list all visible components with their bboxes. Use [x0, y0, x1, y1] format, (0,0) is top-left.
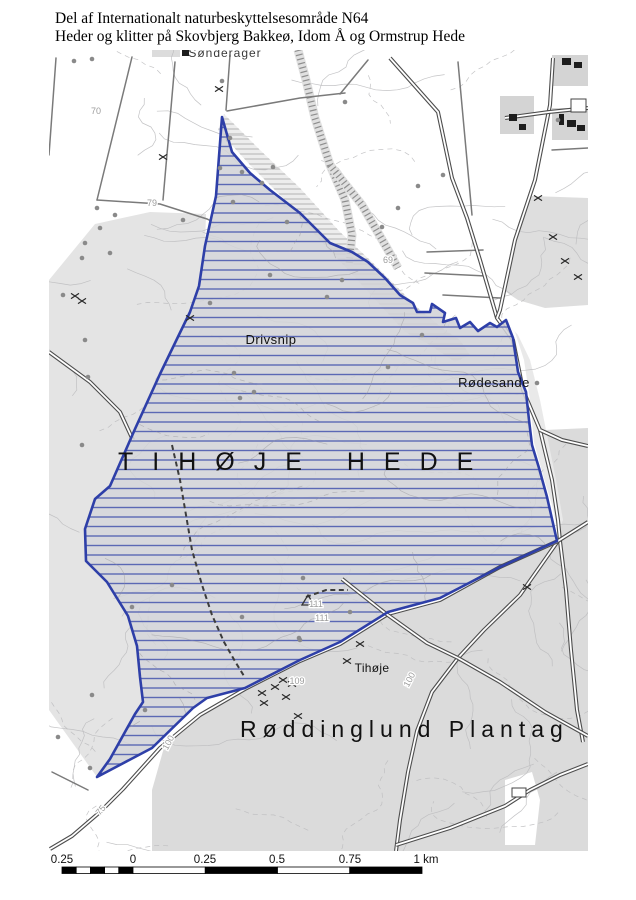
contour-line: [402, 251, 511, 295]
tree-dot-icon: [420, 333, 425, 338]
elevation-label: 111: [315, 613, 329, 623]
road-road-apex-ne: [227, 93, 345, 111]
label-drivsnip: Drivsnip: [246, 332, 297, 347]
scale-bar-label: 0.25: [51, 854, 73, 866]
tree-dot-icon: [285, 220, 290, 225]
tree-dot-icon: [88, 766, 93, 771]
tree-dot-icon: [535, 381, 540, 386]
tree-dot-icon: [240, 170, 245, 175]
tree-dot-icon: [325, 295, 330, 300]
building-icon: [574, 62, 582, 68]
tree-dot-icon: [170, 583, 175, 588]
map-title-line2: Heder og klitter på Skovbjerg Bakkeø, Id…: [55, 28, 465, 46]
road-field-line-7: [552, 148, 588, 150]
tree-dot-icon: [95, 206, 100, 211]
elevation-label: 79: [147, 198, 157, 208]
scale-bar-label: 0: [130, 854, 136, 866]
tree-dot-icon: [396, 206, 401, 211]
scale-bar-label: 0.75: [339, 854, 361, 866]
contour-line: [138, 98, 156, 155]
tree-dot-icon: [86, 375, 91, 380]
contour-line: [498, 128, 528, 189]
tree-dot-icon: [380, 225, 385, 230]
contour-line: [54, 55, 160, 126]
road-firebreak-long: [458, 62, 472, 215]
scale-bar-segment: [119, 867, 133, 874]
tree-dot-icon: [556, 118, 561, 123]
elevation-label: 69: [383, 255, 393, 265]
map-layers: 70796911111110910010075SønderagerDrivsni…: [0, 11, 636, 900]
tree-dot-icon: [108, 251, 113, 256]
tree-dot-icon: [240, 615, 245, 620]
tree-dot-icon: [386, 365, 391, 370]
building-outline-icon: [571, 99, 586, 112]
region-white-clearing: [505, 772, 540, 845]
road-field-line-4: [427, 250, 483, 252]
contour-line: [368, 75, 390, 123]
tree-dot-icon: [260, 181, 265, 186]
building-icon: [562, 58, 571, 65]
map-title-block: Del af Internationalt naturbeskyttelseso…: [55, 10, 465, 46]
building-icon: [509, 114, 517, 121]
road-field-line-3: [163, 62, 175, 200]
label-rodesande: Rødesande: [458, 375, 530, 390]
tree-dot-icon: [298, 638, 303, 643]
tree-dot-icon: [348, 610, 353, 615]
tree-dot-icon: [232, 371, 237, 376]
tree-dot-icon: [252, 390, 257, 395]
label-tihoje-hede: TIHØJE HEDE: [118, 448, 492, 476]
elevation-label: 109: [289, 676, 304, 686]
marker-cross-icon: [215, 86, 223, 91]
scale-bar: 0.2500.250.50.751 km: [51, 854, 439, 874]
label-tihoje: Tihøje: [355, 661, 390, 675]
scale-bar-label: 1 km: [414, 854, 439, 866]
road-track-sw: [52, 772, 88, 790]
tree-dot-icon: [83, 241, 88, 246]
scale-bar-label: 0.5: [269, 854, 285, 866]
contour-line: [395, 242, 472, 291]
tree-dot-icon: [228, 136, 233, 141]
tree-dot-icon: [113, 213, 118, 218]
building-icon: [577, 125, 585, 131]
contour-line: [451, 11, 555, 90]
building-icon: [567, 120, 576, 127]
tree-dot-icon: [343, 100, 348, 105]
road-field-line-5: [425, 273, 486, 276]
elevation-label: 111: [309, 599, 323, 609]
tree-dot-icon: [441, 173, 446, 178]
map-title-line1: Del af Internationalt naturbeskyttelseso…: [55, 10, 465, 28]
building-outline-icon: [512, 788, 526, 797]
tree-dot-icon: [56, 735, 61, 740]
building-icon: [519, 124, 526, 130]
scale-bar-segment: [350, 867, 422, 874]
tree-dot-icon: [98, 226, 103, 231]
tree-dot-icon: [181, 218, 186, 223]
tree-dot-icon: [208, 301, 213, 306]
tree-dot-icon: [268, 273, 273, 278]
road-field-line-2: [97, 57, 132, 200]
scale-bar-segment: [76, 867, 90, 874]
tree-dot-icon: [61, 293, 66, 298]
tree-dot-icon: [218, 166, 223, 171]
contour-line: [555, 133, 636, 192]
scale-bar-segment: [90, 867, 104, 874]
tree-dot-icon: [90, 57, 95, 62]
tree-dot-icon: [72, 59, 77, 64]
map-svg: 70796911111110910010075SønderagerDrivsni…: [0, 0, 636, 900]
road-road-apex-n: [226, 55, 230, 110]
tree-dot-icon: [130, 605, 135, 610]
tree-dot-icon: [271, 165, 276, 170]
scale-bar-segment: [278, 867, 350, 874]
tree-dot-icon: [90, 693, 95, 698]
tree-dot-icon: [340, 278, 345, 283]
scale-bar-segment: [105, 867, 119, 874]
scale-bar-segment: [133, 867, 205, 874]
marker-cross-icon: [159, 154, 167, 159]
contour-line: [409, 205, 505, 235]
tree-dot-icon: [220, 79, 225, 84]
tree-dot-icon: [80, 443, 85, 448]
road-road-ne-up: [340, 60, 368, 94]
road-field-line-1: [49, 58, 56, 155]
tree-dot-icon: [301, 576, 306, 581]
elevation-label: 70: [91, 106, 101, 116]
contour-line: [292, 75, 445, 91]
tree-dot-icon: [143, 708, 148, 713]
tree-dot-icon: [231, 200, 236, 205]
scale-bar-segment: [62, 867, 76, 874]
tree-dot-icon: [416, 184, 421, 189]
label-roddinglund: Røddinglund Plantag: [240, 716, 569, 742]
tree-dot-icon: [238, 396, 243, 401]
tree-dot-icon: [83, 338, 88, 343]
scale-bar-segment: [205, 867, 277, 874]
scale-bar-label: 0.25: [194, 854, 216, 866]
tree-dot-icon: [80, 256, 85, 261]
map-canvas: 70796911111110910010075SønderagerDrivsni…: [0, 0, 636, 900]
label-sonderager: Sønderager: [188, 46, 261, 60]
